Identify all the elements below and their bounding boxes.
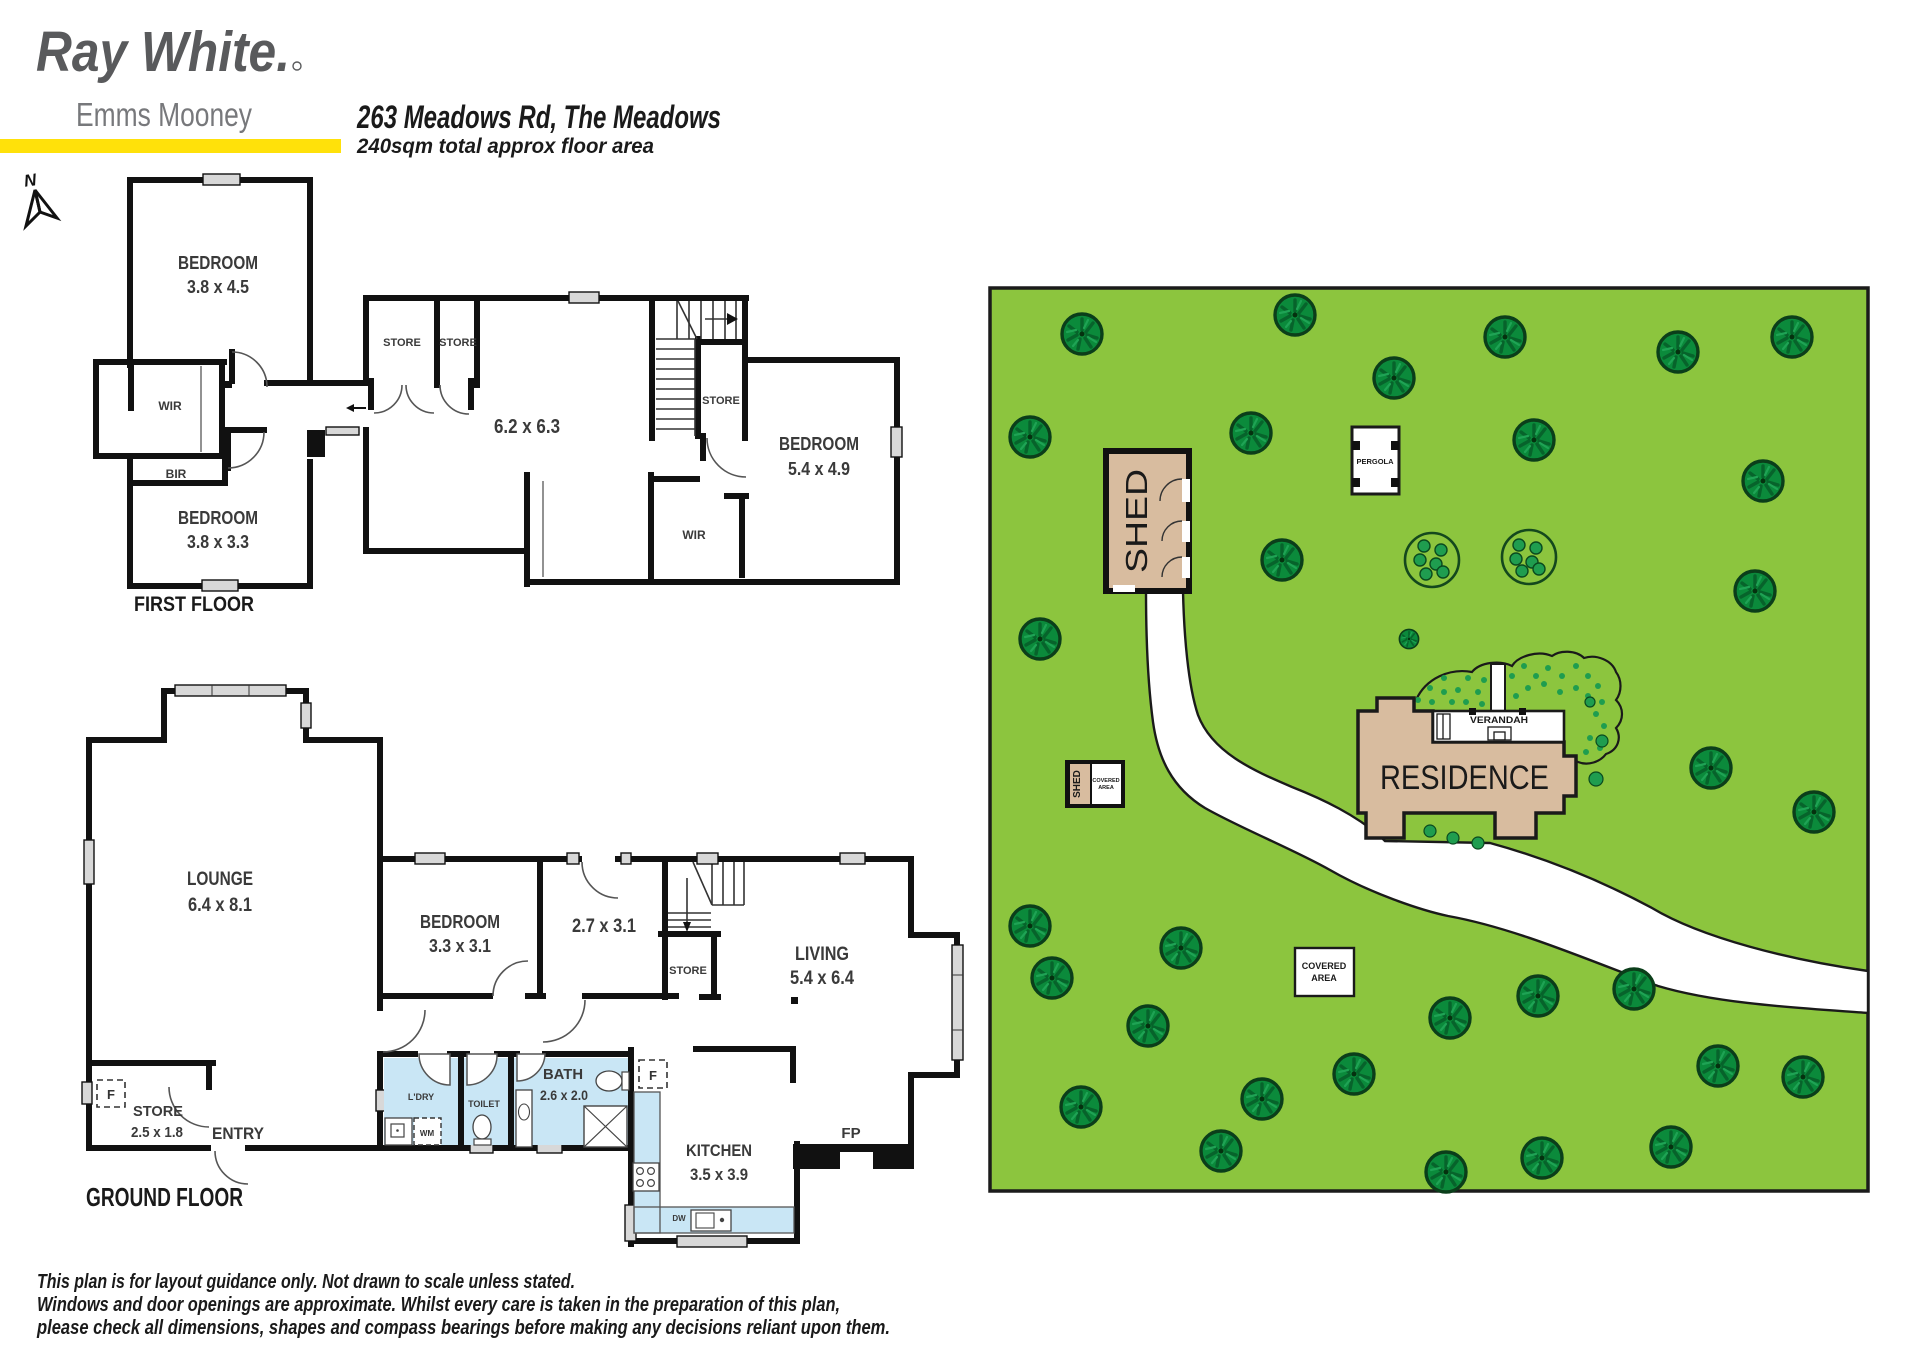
svg-text:Windows and door openings are: Windows and door openings are approximat…: [37, 1294, 840, 1316]
svg-text:STORE: STORE: [133, 1103, 183, 1120]
svg-text:5.4 x 6.4: 5.4 x 6.4: [790, 968, 854, 989]
svg-text:BIR: BIR: [166, 467, 187, 481]
svg-text:This plan is for layout guidan: This plan is for layout guidance only. N…: [37, 1271, 575, 1293]
svg-text:AREA: AREA: [1311, 973, 1337, 983]
svg-text:BEDROOM: BEDROOM: [178, 253, 258, 273]
svg-text:COVERED: COVERED: [1302, 961, 1347, 971]
svg-text:STORE: STORE: [702, 395, 740, 407]
svg-text:STORE: STORE: [439, 337, 477, 349]
svg-text:6.2 x 6.3: 6.2 x 6.3: [494, 416, 560, 438]
svg-text:AREA: AREA: [1098, 785, 1114, 791]
svg-text:N: N: [23, 170, 39, 191]
svg-text:LOUNGE: LOUNGE: [187, 869, 253, 890]
svg-text:WIR: WIR: [682, 528, 706, 542]
svg-text:TOILET: TOILET: [468, 1099, 500, 1109]
svg-text:F: F: [649, 1068, 657, 1083]
svg-text:Emms Mooney: Emms Mooney: [76, 96, 252, 133]
svg-text:RESIDENCE: RESIDENCE: [1380, 759, 1549, 797]
svg-text:3.5 x 3.9: 3.5 x 3.9: [690, 1165, 748, 1184]
svg-text:WM: WM: [420, 1129, 435, 1138]
svg-text:LIVING: LIVING: [795, 944, 849, 965]
svg-text:3.8 x 3.3: 3.8 x 3.3: [187, 532, 249, 552]
svg-text:PERGOLA: PERGOLA: [1356, 457, 1394, 466]
svg-text:SHED: SHED: [1119, 469, 1154, 573]
svg-text:F: F: [107, 1087, 115, 1102]
svg-text:FP: FP: [841, 1125, 860, 1142]
svg-text:2.6 x 2.0: 2.6 x 2.0: [540, 1087, 588, 1103]
svg-text:Ray White.: Ray White.: [36, 20, 290, 84]
svg-text:WIR: WIR: [158, 399, 182, 413]
svg-text:please check all dimensions, s: please check all dimensions, shapes and …: [36, 1317, 890, 1339]
svg-text:L'DRY: L'DRY: [408, 1092, 434, 1102]
svg-text:GROUND FLOOR: GROUND FLOOR: [86, 1182, 243, 1212]
svg-text:COVERED: COVERED: [1092, 778, 1119, 784]
svg-text:263 Meadows Rd, The Meadows: 263 Meadows Rd, The Meadows: [356, 99, 721, 135]
svg-text:SHED: SHED: [1072, 770, 1083, 798]
svg-text:6.4 x 8.1: 6.4 x 8.1: [188, 895, 252, 916]
svg-text:2.5 x 1.8: 2.5 x 1.8: [131, 1124, 183, 1141]
svg-text:STORE: STORE: [669, 965, 707, 977]
svg-text:DW: DW: [672, 1214, 686, 1223]
svg-text:STORE: STORE: [383, 337, 421, 349]
svg-text:5.4 x 4.9: 5.4 x 4.9: [788, 459, 850, 479]
svg-text:240sqm total approx floor area: 240sqm total approx floor area: [356, 135, 654, 158]
svg-text:3.8 x 4.5: 3.8 x 4.5: [187, 277, 249, 297]
svg-text:FIRST FLOOR: FIRST FLOOR: [134, 593, 254, 616]
svg-text:BATH: BATH: [543, 1066, 583, 1083]
svg-text:3.3 x 3.1: 3.3 x 3.1: [429, 936, 491, 956]
svg-text:BEDROOM: BEDROOM: [779, 434, 859, 454]
svg-text:VERANDAH: VERANDAH: [1470, 715, 1528, 725]
svg-text:ENTRY: ENTRY: [212, 1124, 265, 1143]
svg-text:BEDROOM: BEDROOM: [420, 912, 500, 932]
svg-text:BEDROOM: BEDROOM: [178, 508, 258, 528]
svg-text:2.7 x 3.1: 2.7 x 3.1: [572, 916, 636, 937]
svg-text:KITCHEN: KITCHEN: [686, 1141, 752, 1160]
